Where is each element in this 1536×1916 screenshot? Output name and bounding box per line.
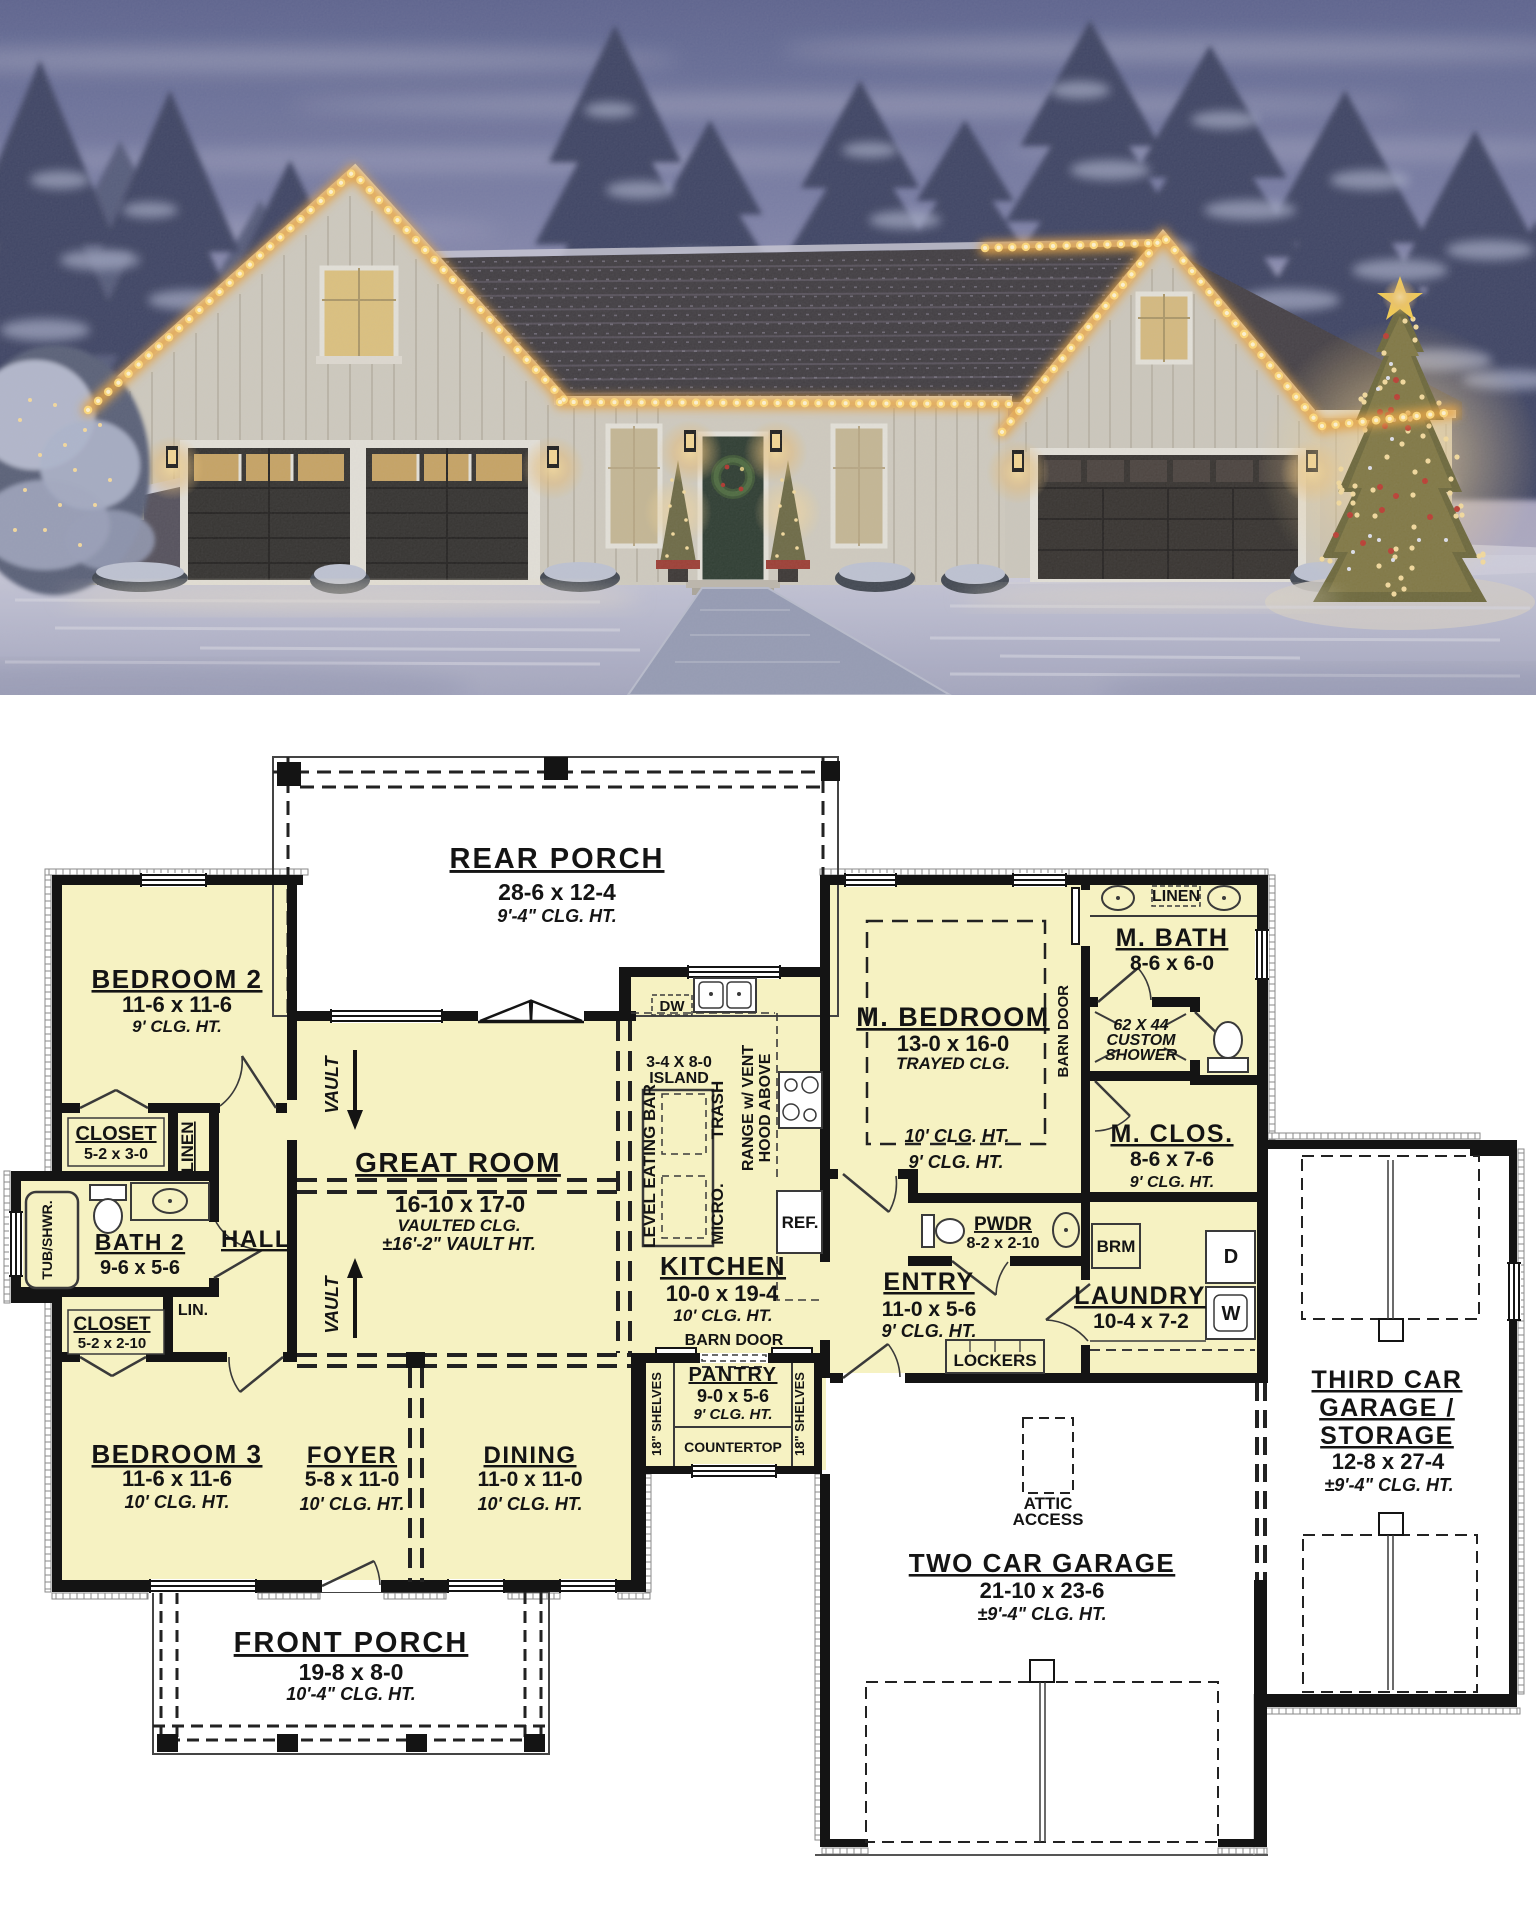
svg-text:8-2 x 2-10: 8-2 x 2-10 xyxy=(967,1235,1040,1252)
svg-text:10' CLG. HT.: 10' CLG. HT. xyxy=(300,1494,405,1514)
svg-text:±9'-4" CLG. HT.: ±9'-4" CLG. HT. xyxy=(977,1604,1106,1624)
svg-text:9' CLG. HT.: 9' CLG. HT. xyxy=(693,1406,772,1423)
svg-text:COUNTERTOP: COUNTERTOP xyxy=(684,1439,782,1455)
svg-text:HOOD ABOVE: HOOD ABOVE xyxy=(757,1053,774,1162)
svg-text:10' CLG. HT.: 10' CLG. HT. xyxy=(905,1126,1010,1146)
svg-text:8-6 x 7-6: 8-6 x 7-6 xyxy=(1130,1148,1214,1171)
svg-text:D: D xyxy=(1224,1246,1238,1268)
svg-text:TRAYED CLG.: TRAYED CLG. xyxy=(896,1054,1010,1073)
svg-text:FRONT PORCH: FRONT PORCH xyxy=(234,1627,469,1659)
svg-text:5-8 x 11-0: 5-8 x 11-0 xyxy=(305,1468,400,1491)
svg-text:PWDR: PWDR xyxy=(974,1214,1032,1235)
svg-text:9' CLG. HT.: 9' CLG. HT. xyxy=(132,1017,222,1036)
svg-text:16-10 x 17-0: 16-10 x 17-0 xyxy=(395,1191,525,1217)
svg-text:TRASH: TRASH xyxy=(708,1081,727,1140)
svg-text:LINEN: LINEN xyxy=(1152,888,1200,905)
svg-text:18" SHELVES: 18" SHELVES xyxy=(792,1372,807,1456)
svg-text:MICRO.: MICRO. xyxy=(708,1183,727,1244)
svg-text:11-6 x 11-6: 11-6 x 11-6 xyxy=(122,1466,232,1491)
svg-text:10' CLG. HT.: 10' CLG. HT. xyxy=(673,1306,772,1325)
svg-text:BEDROOM 2: BEDROOM 2 xyxy=(92,964,263,994)
svg-text:11-6 x 11-6: 11-6 x 11-6 xyxy=(122,992,232,1017)
svg-text:11-0 x 5-6: 11-0 x 5-6 xyxy=(882,1298,977,1321)
svg-text:12-8 x 27-4: 12-8 x 27-4 xyxy=(1332,1449,1445,1474)
svg-text:10' CLG. HT.: 10' CLG. HT. xyxy=(125,1492,230,1512)
svg-text:TWO CAR GARAGE: TWO CAR GARAGE xyxy=(909,1548,1176,1578)
svg-text:10' CLG. HT.: 10' CLG. HT. xyxy=(478,1494,583,1514)
svg-text:W: W xyxy=(1222,1303,1241,1325)
svg-text:VAULTED CLG.: VAULTED CLG. xyxy=(397,1216,520,1235)
svg-text:3-4 X 8-0: 3-4 X 8-0 xyxy=(646,1054,712,1071)
svg-text:REAR PORCH: REAR PORCH xyxy=(450,843,665,875)
svg-text:CLOSET: CLOSET xyxy=(73,1314,150,1335)
svg-text:FOYER: FOYER xyxy=(307,1442,397,1469)
svg-text:LAUNDRY: LAUNDRY xyxy=(1074,1282,1206,1310)
svg-text:M. CLOS.: M. CLOS. xyxy=(1110,1120,1233,1148)
svg-text:CLOSET: CLOSET xyxy=(75,1123,156,1145)
svg-text:BARN DOOR: BARN DOOR xyxy=(685,1332,784,1349)
svg-text:STORAGE: STORAGE xyxy=(1320,1422,1454,1450)
svg-text:9-0 x 5-6: 9-0 x 5-6 xyxy=(697,1386,769,1406)
svg-text:M. BATH: M. BATH xyxy=(1116,924,1229,952)
svg-text:±16'-2" VAULT HT.: ±16'-2" VAULT HT. xyxy=(382,1234,536,1254)
svg-text:HALL: HALL xyxy=(221,1226,291,1253)
svg-text:KITCHEN: KITCHEN xyxy=(660,1251,786,1281)
svg-text:11-0 x 11-0: 11-0 x 11-0 xyxy=(477,1468,582,1491)
svg-text:21-10 x 23-6: 21-10 x 23-6 xyxy=(980,1578,1105,1603)
svg-text:GARAGE /: GARAGE / xyxy=(1319,1394,1455,1422)
svg-text:GREAT ROOM: GREAT ROOM xyxy=(355,1147,561,1178)
svg-text:PANTRY: PANTRY xyxy=(689,1364,778,1386)
svg-text:10-0 x 19-4: 10-0 x 19-4 xyxy=(666,1281,779,1306)
svg-text:9' CLG. HT.: 9' CLG. HT. xyxy=(1130,1174,1214,1191)
svg-text:ACCESS: ACCESS xyxy=(1013,1510,1084,1529)
svg-text:RANGE w/ VENT: RANGE w/ VENT xyxy=(740,1045,757,1171)
svg-text:REF.: REF. xyxy=(782,1213,819,1232)
svg-text:±9'-4" CLG. HT.: ±9'-4" CLG. HT. xyxy=(1324,1475,1453,1495)
svg-text:BARN DOOR: BARN DOOR xyxy=(1055,985,1072,1078)
svg-text:9-6 x 5-6: 9-6 x 5-6 xyxy=(100,1257,180,1279)
svg-text:9' CLG. HT.: 9' CLG. HT. xyxy=(909,1152,1004,1172)
svg-text:5-2 x 2-10: 5-2 x 2-10 xyxy=(78,1335,146,1352)
svg-text:VAULT: VAULT xyxy=(322,1274,342,1333)
svg-text:5-2 x 3-0: 5-2 x 3-0 xyxy=(84,1146,148,1163)
svg-text:M. BEDROOM: M. BEDROOM xyxy=(856,1002,1050,1032)
svg-text:LIN.: LIN. xyxy=(178,1302,208,1319)
svg-text:19-8 x 8-0: 19-8 x 8-0 xyxy=(299,1659,404,1685)
svg-text:THIRD CAR: THIRD CAR xyxy=(1312,1366,1463,1394)
svg-text:LOCKERS: LOCKERS xyxy=(953,1351,1036,1370)
svg-text:10'-4" CLG. HT.: 10'-4" CLG. HT. xyxy=(286,1684,416,1704)
svg-text:18" SHELVES: 18" SHELVES xyxy=(649,1372,664,1456)
svg-text:VAULT: VAULT xyxy=(322,1054,342,1113)
svg-text:SHOWER: SHOWER xyxy=(1105,1047,1177,1064)
svg-text:13-0 x 16-0: 13-0 x 16-0 xyxy=(897,1031,1010,1056)
svg-text:DINING: DINING xyxy=(484,1442,577,1469)
svg-text:9' CLG. HT.: 9' CLG. HT. xyxy=(882,1321,977,1341)
svg-text:28-6 x 12-4: 28-6 x 12-4 xyxy=(498,879,616,905)
svg-text:LINEN: LINEN xyxy=(178,1122,197,1173)
svg-text:LEVEL EATING BAR: LEVEL EATING BAR xyxy=(640,1084,659,1248)
svg-text:BEDROOM 3: BEDROOM 3 xyxy=(92,1439,263,1469)
svg-text:BATH 2: BATH 2 xyxy=(95,1229,185,1255)
svg-text:8-6 x 6-0: 8-6 x 6-0 xyxy=(1130,952,1214,975)
svg-text:10-4 x 7-2: 10-4 x 7-2 xyxy=(1093,1310,1189,1333)
svg-text:9'-4" CLG. HT.: 9'-4" CLG. HT. xyxy=(497,906,617,926)
svg-text:ENTRY: ENTRY xyxy=(883,1268,974,1296)
svg-text:TUB/SHWR.: TUB/SHWR. xyxy=(39,1200,55,1279)
svg-text:BRM: BRM xyxy=(1097,1237,1136,1256)
